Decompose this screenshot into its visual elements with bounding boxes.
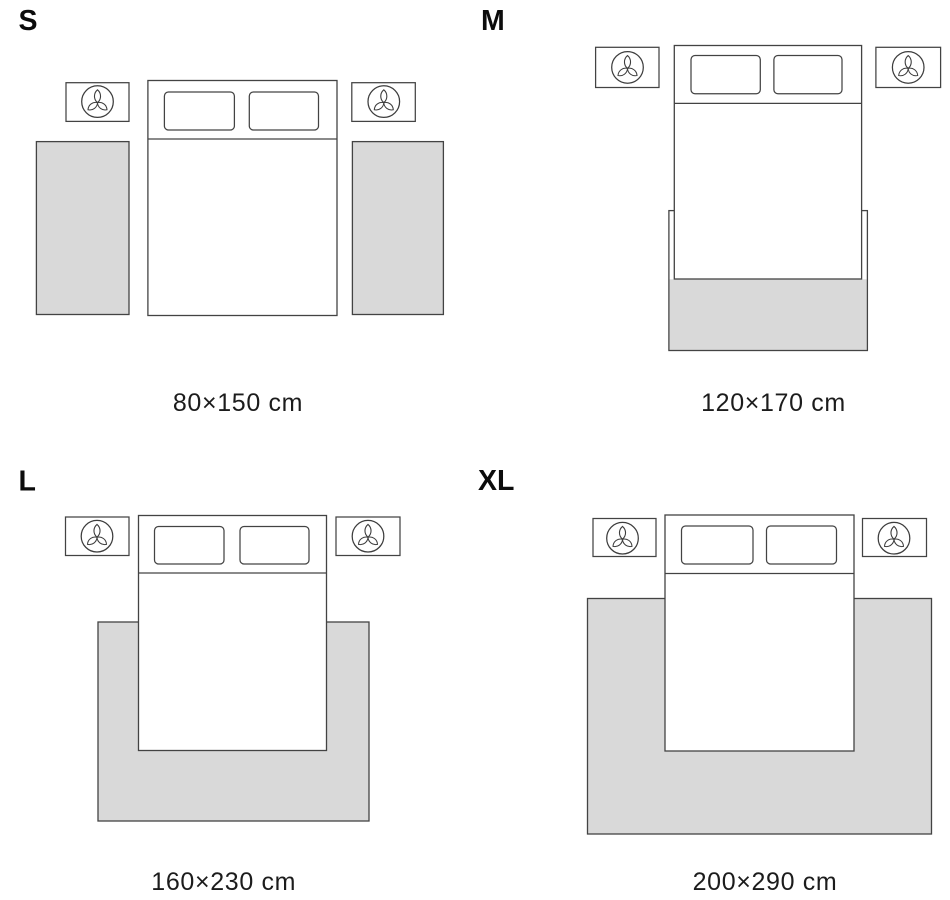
svg-text:XL: XL — [478, 465, 514, 497]
svg-text:S: S — [19, 5, 38, 37]
svg-text:200×290 cm: 200×290 cm — [693, 868, 838, 896]
svg-text:120×170 cm: 120×170 cm — [701, 389, 846, 417]
svg-text:L: L — [19, 466, 36, 498]
svg-text:M: M — [481, 5, 505, 37]
svg-text:80×150 cm: 80×150 cm — [173, 389, 303, 417]
svg-text:160×230 cm: 160×230 cm — [151, 868, 296, 896]
